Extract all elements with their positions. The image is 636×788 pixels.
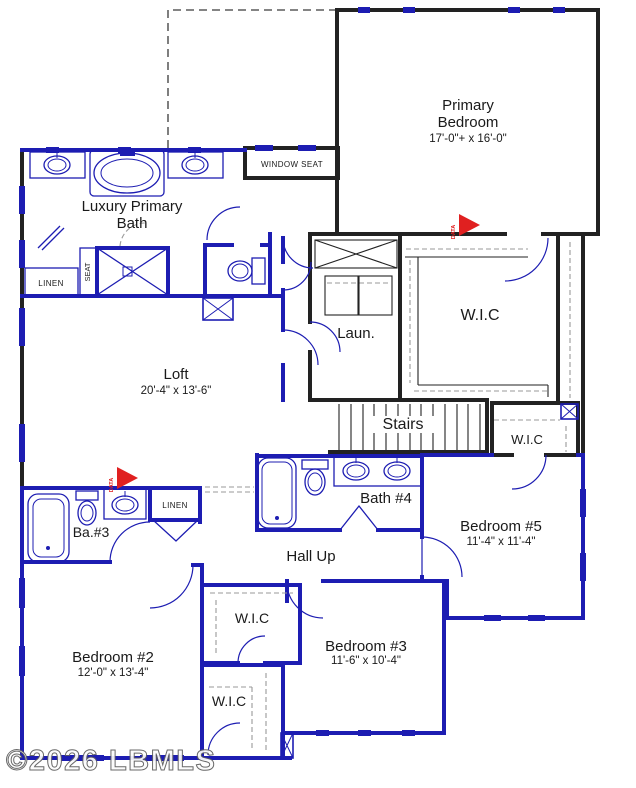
primary-bedroom-dims: 17'-0"+ x 16'-0" [429, 133, 506, 145]
shelving-solid-lines [405, 257, 548, 397]
floor-plan-canvas: DATA DATA Primary Bedroom 17'-0"+ x 16'-… [0, 0, 636, 788]
shower-seat-label: SEAT [83, 262, 92, 281]
door-arcs [110, 207, 548, 755]
bath4-label: Bath #4 [360, 490, 412, 507]
data-marker-label: DATA [451, 225, 457, 239]
hall-up-label: Hall Up [286, 548, 335, 565]
loft-dims: 20'-4" x 13'-6" [141, 385, 212, 397]
bedroom5-label: Bedroom #5 [460, 518, 542, 535]
wic-bedroom2-label: W.I.C [212, 693, 246, 709]
wic-primary-label: W.I.C [460, 307, 499, 324]
watermark: ©2026 LBMLS [6, 745, 216, 777]
primary-bedroom-label-line2: Bedroom [438, 114, 499, 131]
luxury-bath-label-line2: Bath [117, 215, 148, 232]
loft-label: Loft [163, 366, 189, 383]
floor-plan: DATA DATA Primary Bedroom 17'-0"+ x 16'-… [0, 0, 636, 788]
bedroom2-dims: 12'-0" x 13'-4" [78, 667, 149, 679]
linen-upper-label: LINEN [38, 279, 64, 288]
laundry-label: Laun. [337, 325, 375, 342]
window-markers [19, 7, 586, 761]
bedroom3-dims: 11'-6" x 10'-4" [331, 655, 401, 667]
luxury-bath-label-line1: Luxury Primary [82, 198, 183, 215]
dashed-boundary-line [168, 10, 337, 148]
data-marker-label: DATA [109, 478, 115, 492]
wic-bedroom3-label: W.I.C [235, 610, 269, 626]
stairs-label: Stairs [383, 416, 424, 433]
wic-hall-label: W.I.C [511, 432, 543, 447]
primary-bedroom-label-line1: Primary [442, 97, 494, 114]
bedroom2-label: Bedroom #2 [72, 649, 154, 666]
bedroom3-label: Bedroom #3 [325, 638, 407, 655]
bath3-label: Ba.#3 [73, 524, 110, 540]
window-seat-label: WINDOW SEAT [261, 160, 323, 169]
linen-lower-label: LINEN [162, 501, 188, 510]
bedroom5-dims: 11'-4" x 11'-4" [466, 536, 535, 548]
laundry-appliances [325, 276, 392, 315]
